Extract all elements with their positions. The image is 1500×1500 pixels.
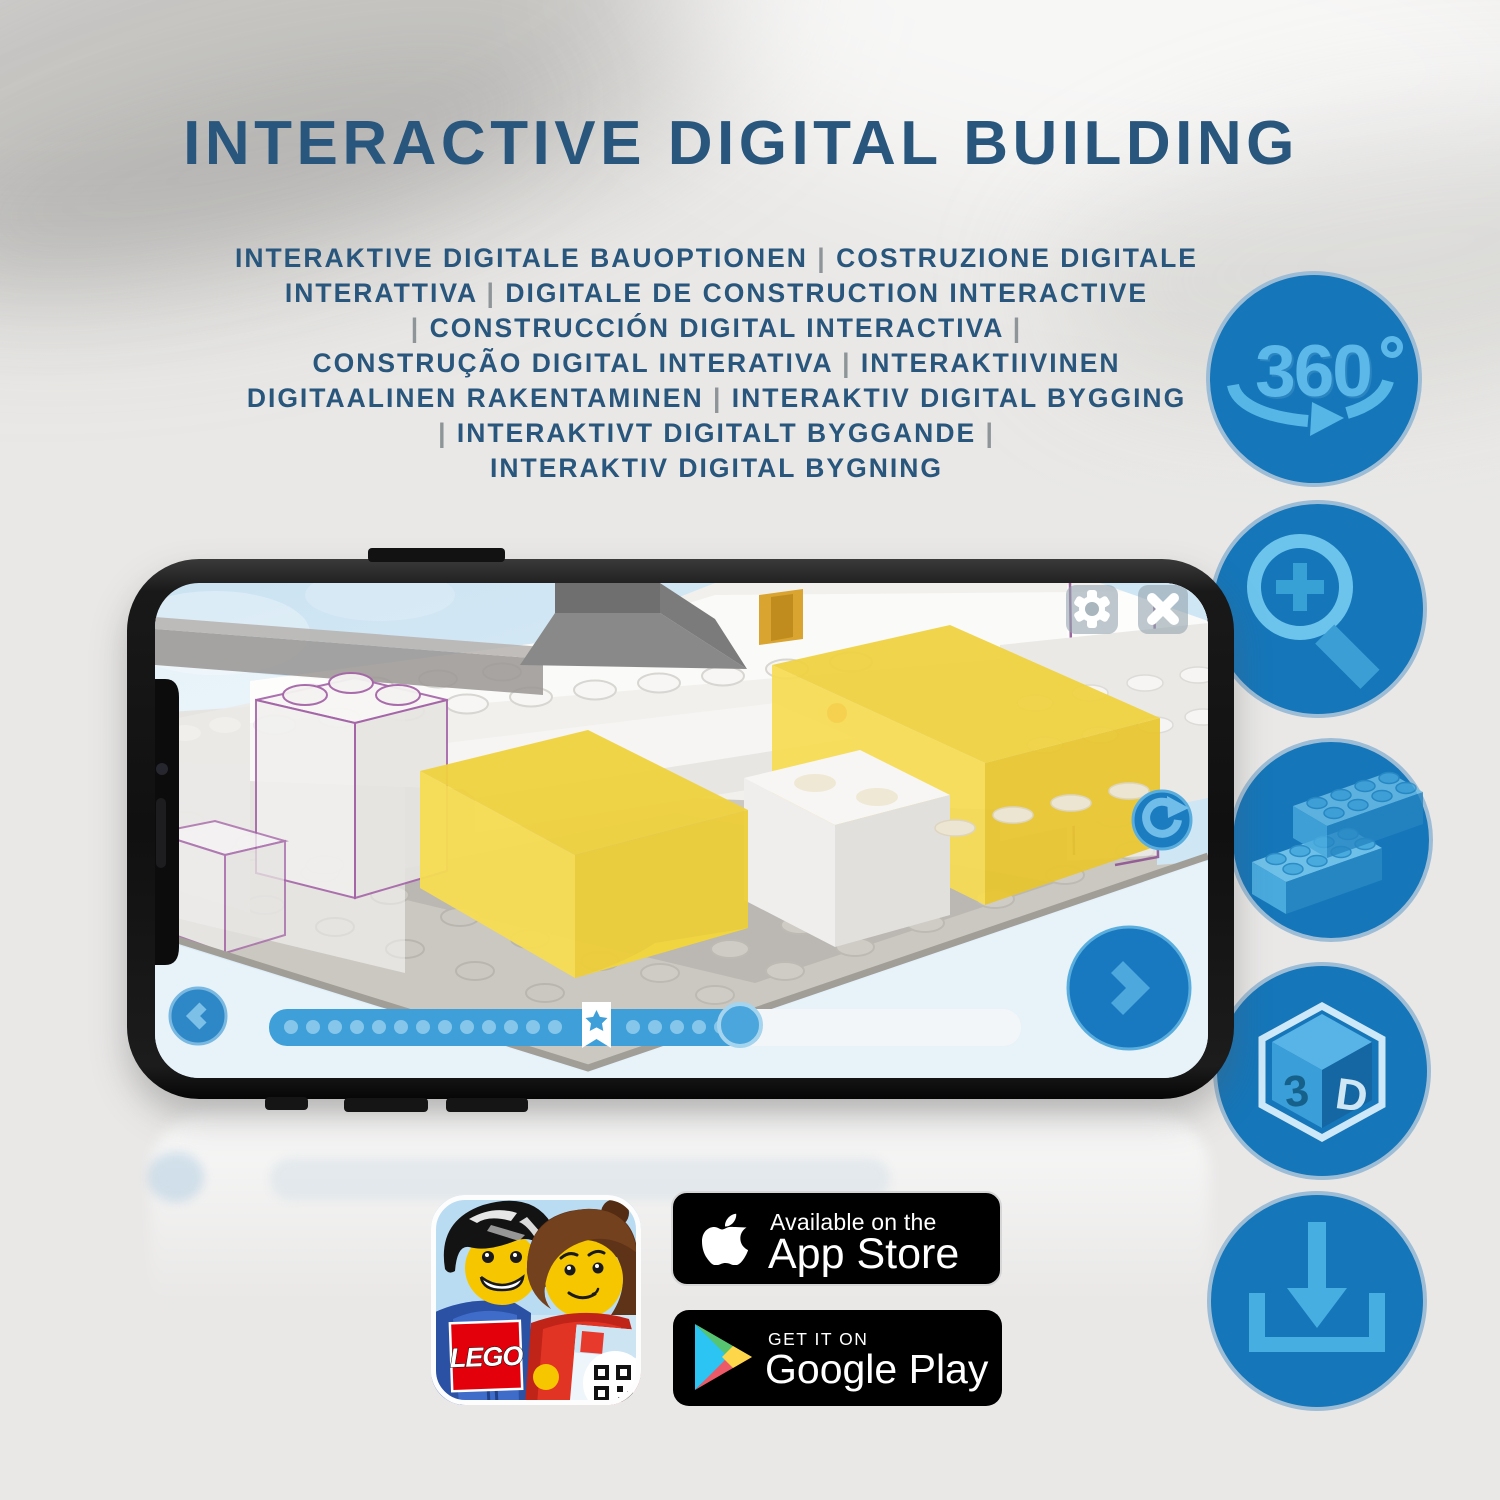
svg-text:360: 360 bbox=[1255, 331, 1371, 412]
svg-text:D: D bbox=[1332, 1069, 1370, 1122]
svg-text:LEGO: LEGO bbox=[449, 1341, 524, 1374]
